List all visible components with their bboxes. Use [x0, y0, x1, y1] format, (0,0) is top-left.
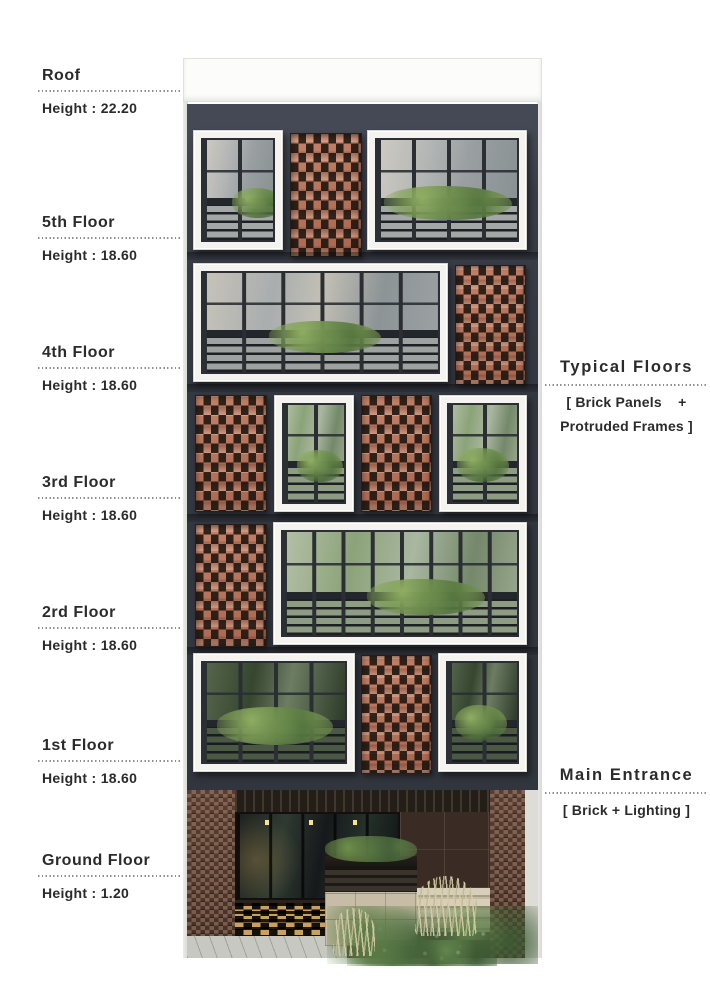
- dotted-leader: [38, 367, 180, 369]
- dotted-leader: [545, 792, 708, 794]
- brick-panel-1st: [361, 655, 432, 774]
- dotted-leader: [38, 627, 180, 629]
- annotation-label: Typical Floors: [545, 358, 708, 377]
- building-elevation: [183, 58, 542, 958]
- window-1st-left: [193, 653, 355, 772]
- brick-panel-3rd-center: [361, 395, 432, 512]
- planter-flowers: [297, 450, 343, 482]
- floor-label: 5th Floor: [38, 213, 180, 232]
- brick-panel-5th: [290, 133, 362, 257]
- window-glass: [446, 661, 519, 764]
- window-glass: [201, 661, 347, 764]
- brick-panel-2nd: [195, 524, 267, 647]
- brick-panel-4th: [455, 265, 526, 385]
- main-entrance-annotation: Main Entrance [ Brick + Lighting ]: [545, 766, 708, 818]
- floor-label: 1st Floor: [38, 736, 180, 755]
- ornamental-grass: [333, 908, 375, 956]
- window-glass: [447, 403, 519, 504]
- floor-label: Ground Floor: [38, 851, 180, 870]
- window-1st-right: [438, 653, 527, 772]
- elevation-sheet: Roof Height : 22.20 5th Floor Height : 1…: [0, 0, 710, 1000]
- floor-annotation-5th: 5th Floor Height : 18.60: [38, 213, 180, 263]
- floor-label: 4th Floor: [38, 343, 180, 362]
- window-3rd-left: [274, 395, 354, 512]
- floor-height: Height : 18.60: [38, 377, 180, 393]
- sidewalk-pavement: [187, 936, 347, 958]
- roof-parapet: [183, 58, 542, 102]
- floor-annotation-1st: 1st Floor Height : 18.60: [38, 736, 180, 786]
- window-2nd-wide: [273, 522, 527, 645]
- floor-label: 3rd Floor: [38, 473, 180, 492]
- floor-band: [187, 514, 538, 522]
- dark-facade: [187, 104, 538, 790]
- ornamental-grass: [415, 876, 477, 936]
- floor-height: Height : 22.20: [38, 100, 180, 116]
- floor-height: Height : 18.60: [38, 770, 180, 786]
- window-glass: [375, 138, 519, 242]
- window-3rd-right: [439, 395, 527, 512]
- dotted-leader: [545, 384, 708, 386]
- floor-height: Height : 1.20: [38, 885, 180, 901]
- floor-annotation-ground: Ground Floor Height : 1.20: [38, 851, 180, 901]
- ground-floor-entrance: [187, 790, 538, 958]
- typical-floors-annotation: Typical Floors [ Brick Panels + Protrude…: [545, 358, 708, 434]
- planter-flowers: [269, 321, 381, 353]
- window-4th-wide: [193, 263, 448, 382]
- annotation-note: [ Brick + Lighting ]: [545, 802, 708, 818]
- window-5th-left: [193, 130, 283, 250]
- planter-flowers: [457, 448, 509, 482]
- dotted-leader: [38, 497, 180, 499]
- planter-railing: [325, 870, 417, 894]
- planter-flowers: [455, 705, 507, 741]
- entrance-soffit: [235, 790, 490, 812]
- planter-flowers: [367, 579, 485, 615]
- window-glass: [281, 530, 519, 637]
- floor-annotation-2nd: 2rd Floor Height : 18.60: [38, 603, 180, 653]
- brick-panel-3rd-left: [195, 395, 267, 512]
- window-glass: [201, 138, 275, 242]
- window-5th-right: [367, 130, 527, 250]
- window-glass: [282, 403, 346, 504]
- annotation-note: Protruded Frames ]: [545, 418, 708, 434]
- annotation-label: Main Entrance: [545, 766, 708, 785]
- planter-flowers: [384, 186, 512, 220]
- floor-height: Height : 18.60: [38, 507, 180, 523]
- dotted-leader: [38, 760, 180, 762]
- planter-flowers: [217, 707, 333, 745]
- floor-height: Height : 18.60: [38, 637, 180, 653]
- dotted-leader: [38, 237, 180, 239]
- dotted-leader: [38, 90, 180, 92]
- floor-label: Roof: [38, 66, 180, 85]
- planter-flowers: [232, 188, 275, 218]
- entrance-brick-wall-left: [187, 790, 235, 958]
- floor-annotation-4th: 4th Floor Height : 18.60: [38, 343, 180, 393]
- floor-height: Height : 18.60: [38, 247, 180, 263]
- floor-band: [187, 252, 538, 260]
- annotation-note: [ Brick Panels +: [545, 394, 708, 410]
- dotted-leader: [38, 875, 180, 877]
- floor-annotation-3rd: 3rd Floor Height : 18.60: [38, 473, 180, 523]
- floor-label: 2rd Floor: [38, 603, 180, 622]
- floor-band: [187, 384, 538, 392]
- window-glass: [201, 271, 440, 374]
- planter-hedge: [325, 836, 417, 862]
- floor-annotation-roof: Roof Height : 22.20: [38, 66, 180, 116]
